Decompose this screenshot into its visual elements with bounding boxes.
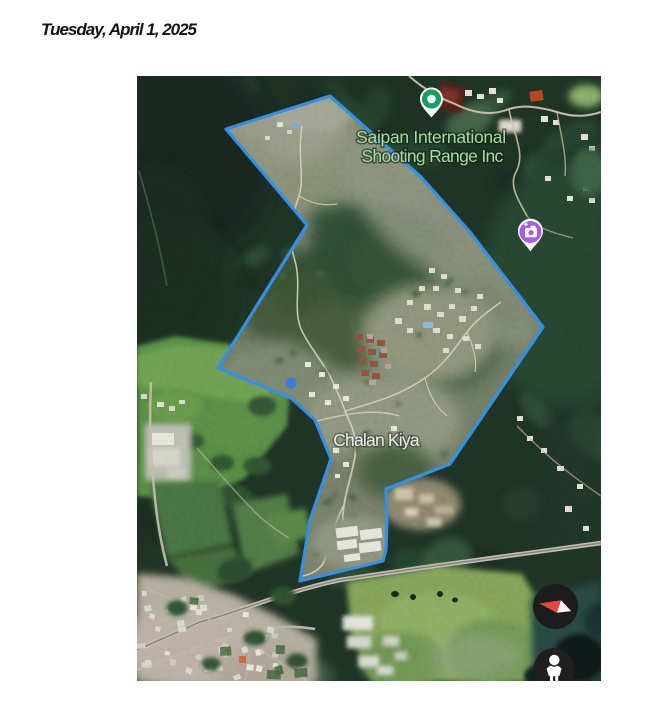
svg-text:Saipan International: Saipan International	[356, 127, 506, 147]
svg-text:Chalan Kiya: Chalan Kiya	[333, 430, 420, 450]
svg-text:Shooting Range Inc: Shooting Range Inc	[361, 146, 503, 166]
